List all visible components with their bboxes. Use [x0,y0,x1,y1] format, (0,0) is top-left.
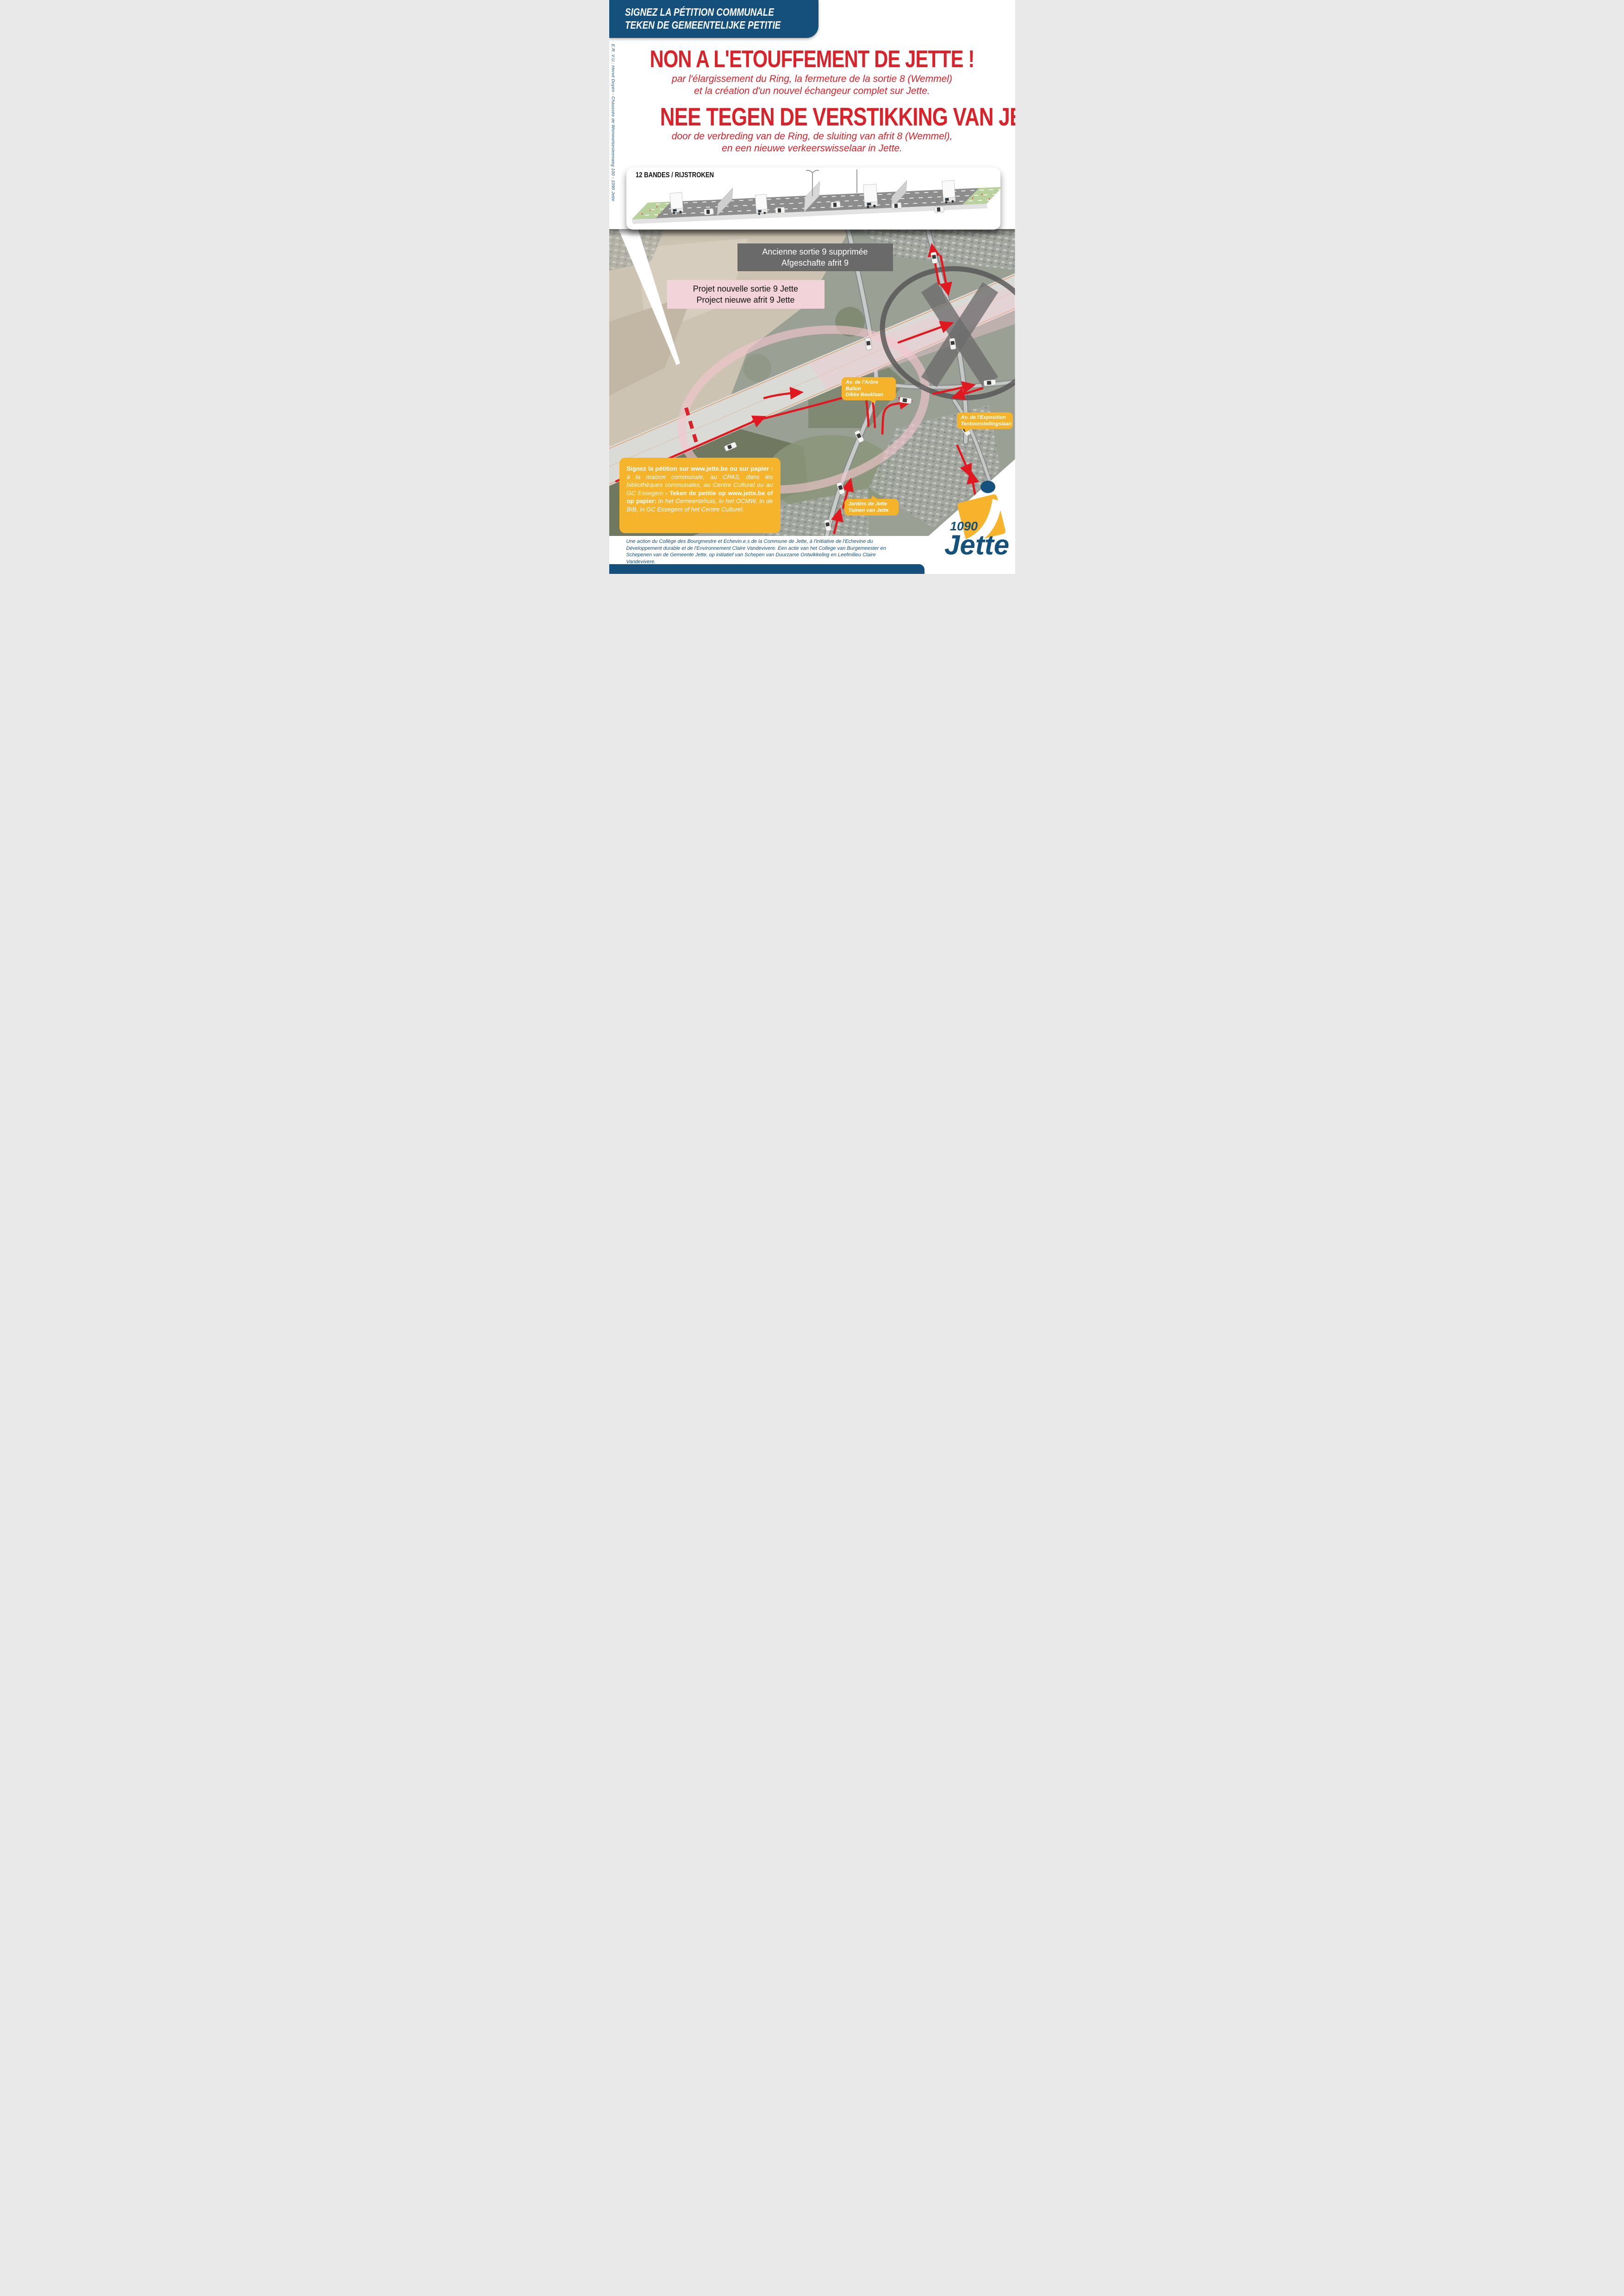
banner: SIGNEZ LA PÉTITION COMMUNALE TEKEN DE GE… [609,0,818,38]
area-bubble-jardins-nl: Tuinen van Jette [849,508,895,514]
street-bubble-exposition-nl: Tentoonstellingslaan [961,421,1009,428]
label-old-exit: Ancienne sortie 9 supprimée Afgeschafte … [737,243,893,271]
headline-nl-subtitle-line1: door de verbreding van de Ring, de sluit… [609,131,1015,143]
jette-logo: 1090 Jette [942,477,1012,559]
headline-fr-subtitle-line2: et la création d'un nouvel échangeur com… [609,85,1015,97]
street-bubble-exposition: Av. de l'Exposition Tentoonstellingslaan [957,412,1013,429]
bottom-blue-bar [609,564,924,574]
street-bubble-exposition-fr: Av. de l'Exposition [961,415,1009,421]
headline-nl-title: NEE TEGEN DE VERSTIKKING VAN JETTE! [609,102,1015,131]
street-bubble-arbre-ballon-fr: Av. de l'Arbre Ballon [846,380,892,392]
headline-nl-subtitle-line2: en een nieuwe verkeerswisselaar in Jette… [609,143,1015,155]
area-bubble-jardins-fr: Jardins de Jette [849,501,895,508]
label-new-exit: Projet nouvelle sortie 9 Jette Project n… [667,280,824,309]
label-old-exit-line2: Afgeschafte afrit 9 [737,257,893,268]
petition-fr-bold: Signez la pétition sur www.jette.be ou s… [627,465,773,472]
lanes-diagram-card: 12 BANDES / RIJSTROKEN [626,168,1000,230]
headline-nl-subtitle: door de verbreding van de Ring, de sluit… [609,131,1015,155]
label-new-exit-line1: Projet nouvelle sortie 9 Jette [667,283,824,294]
petition-cta-box: Signez la pétition sur www.jette.be ou s… [619,458,781,533]
poster-page: SIGNEZ LA PÉTITION COMMUNALE TEKEN DE GE… [609,0,1015,574]
jette-logo-dot [981,481,995,493]
footer-credit: Une action du Collège des Bourgmestre et… [626,538,893,565]
jette-logo-name: Jette [944,529,1009,559]
area-bubble-jardins: Jardins de Jette Tuinen van Jette [844,499,899,516]
label-old-exit-line1: Ancienne sortie 9 supprimée [737,246,893,257]
banner-line-nl: TEKEN DE GEMEENTELIJKE PETITIE [625,19,781,31]
label-new-exit-line2: Project nieuwe afrit 9 Jette [667,294,824,305]
street-bubble-arbre-ballon-nl: Dikke Beuklaan [846,392,892,398]
headline-fr-subtitle-line1: par l'élargissement du Ring, la fermetur… [609,73,1015,85]
banner-line-fr: SIGNEZ LA PÉTITION COMMUNALE [625,6,774,19]
lanes-diagram-title: 12 BANDES / RIJSTROKEN [636,171,731,180]
jette-logo-graphic: 1090 Jette [942,477,1012,559]
headline-fr-title: NON A L'ETOUFFEMENT DE JETTE ! [609,45,1015,73]
street-bubble-arbre-ballon: Av. de l'Arbre Ballon Dikke Beuklaan [842,377,896,400]
headline-fr-subtitle: par l'élargissement du Ring, la fermetur… [609,73,1015,97]
